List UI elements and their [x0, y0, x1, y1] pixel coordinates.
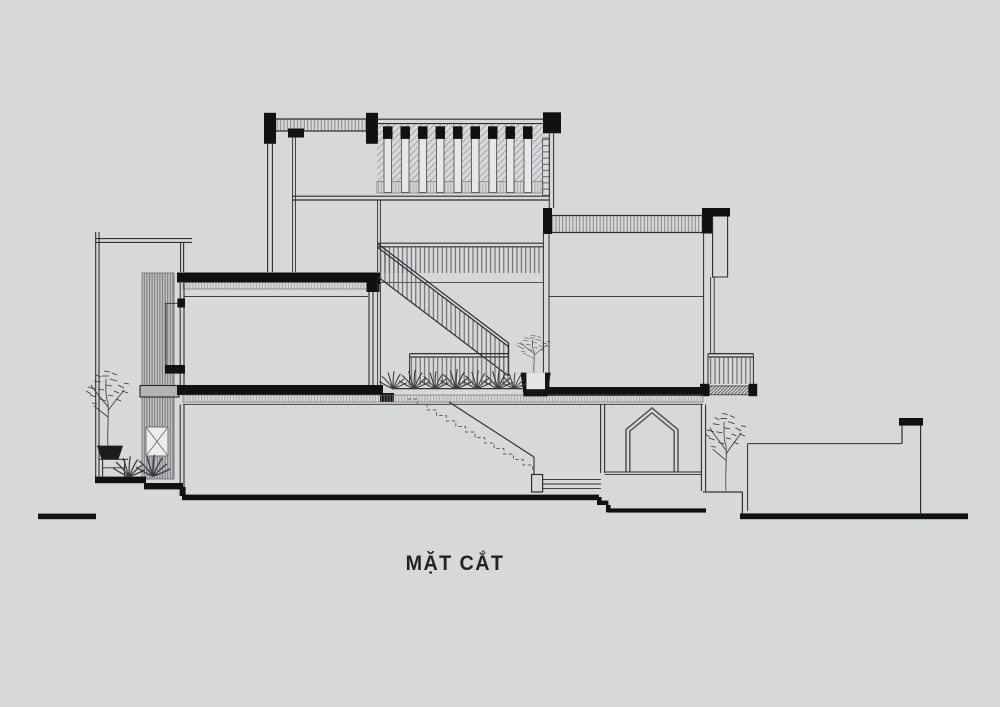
right-tree	[705, 413, 746, 491]
site-ground	[38, 418, 968, 519]
louver-slats	[383, 126, 533, 192]
right-wing	[543, 208, 730, 388]
house-shaped-niche	[626, 408, 678, 472]
guardrails-stairs	[378, 243, 601, 492]
balcony	[700, 354, 757, 397]
left-room-walls	[165, 280, 380, 385]
facade-screen	[140, 273, 179, 479]
newel-post	[532, 475, 543, 493]
bench-rails	[543, 479, 601, 488]
ground-floor	[180, 405, 705, 492]
section-sheet: MẶT CẮT	[0, 0, 1000, 707]
section-drawing	[0, 0, 1000, 707]
roof-slab	[268, 119, 377, 131]
left-tree	[86, 371, 129, 447]
right-ground-line	[740, 513, 968, 519]
right-wing-roof	[551, 216, 703, 233]
stair-stringer	[449, 402, 534, 475]
street-level	[38, 514, 96, 520]
drawing-title: MẶT CẮT	[406, 552, 505, 576]
tick-column	[543, 138, 550, 196]
boundary-wall	[748, 418, 923, 515]
hidden-stair-dashed	[408, 399, 533, 471]
lower-guardrail	[410, 354, 509, 385]
screen-slab-band	[140, 386, 179, 398]
x-panel	[146, 427, 168, 456]
balcony-railing	[708, 357, 753, 384]
tree-bed	[703, 492, 742, 514]
planter-tree	[516, 336, 550, 374]
floor-slab-line	[182, 495, 599, 501]
left-pot	[97, 446, 123, 459]
